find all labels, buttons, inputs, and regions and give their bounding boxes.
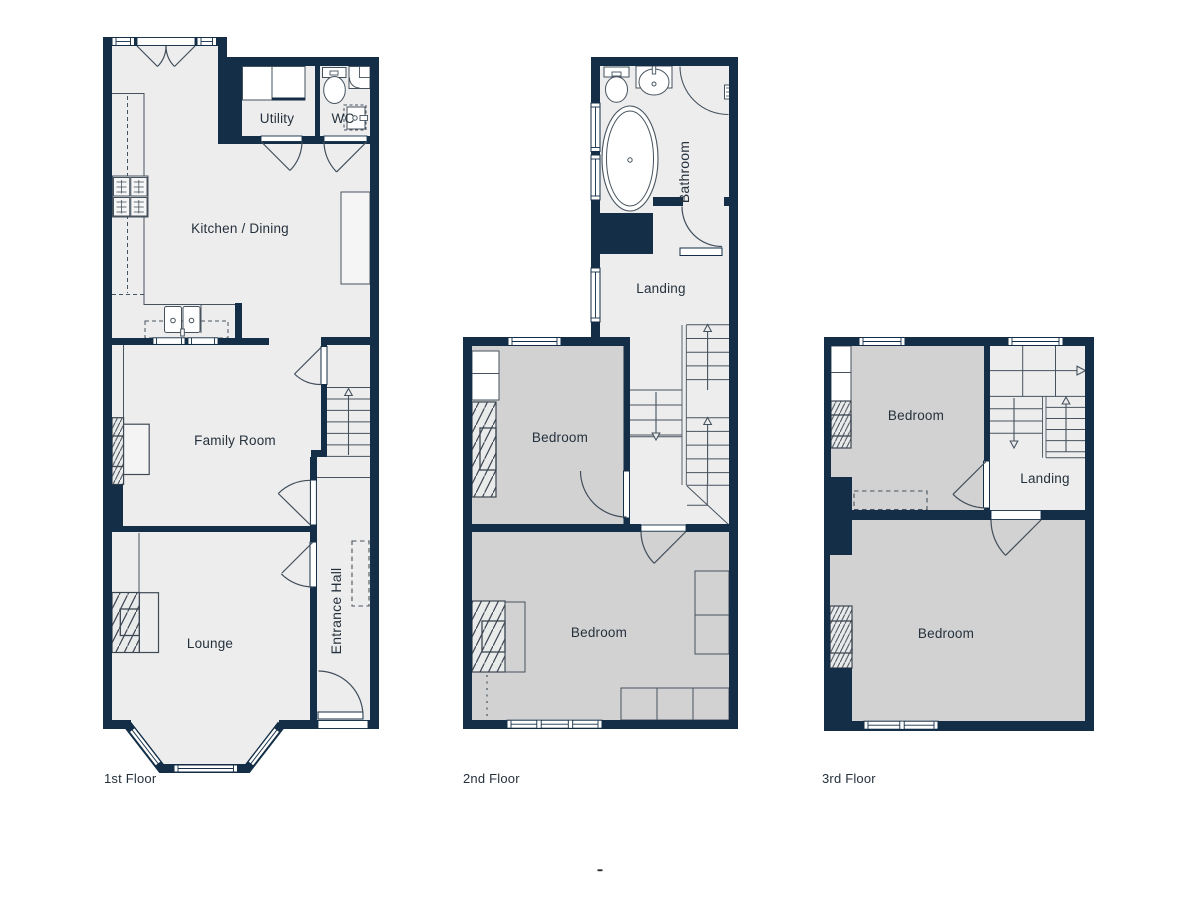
- svg-text:Family Room: Family Room: [194, 433, 276, 448]
- svg-text:Entrance Hall: Entrance Hall: [328, 568, 344, 655]
- svg-text:1st Floor: 1st Floor: [104, 771, 157, 786]
- svg-text:Landing: Landing: [1020, 471, 1069, 486]
- svg-text:Bedroom: Bedroom: [571, 625, 627, 640]
- svg-text:Bedroom: Bedroom: [918, 626, 974, 641]
- svg-text:Bedroom: Bedroom: [532, 430, 588, 445]
- svg-text:Bedroom: Bedroom: [888, 408, 944, 423]
- svg-text:Utility: Utility: [260, 111, 294, 126]
- svg-text:Landing: Landing: [636, 281, 685, 296]
- svg-text:2nd Floor: 2nd Floor: [463, 771, 520, 786]
- svg-text:3rd Floor: 3rd Floor: [822, 771, 876, 786]
- svg-text:Kitchen / Dining: Kitchen / Dining: [191, 221, 289, 236]
- svg-text:Lounge: Lounge: [187, 636, 233, 651]
- svg-text:Bathroom: Bathroom: [676, 141, 692, 203]
- svg-text:WC: WC: [332, 111, 355, 126]
